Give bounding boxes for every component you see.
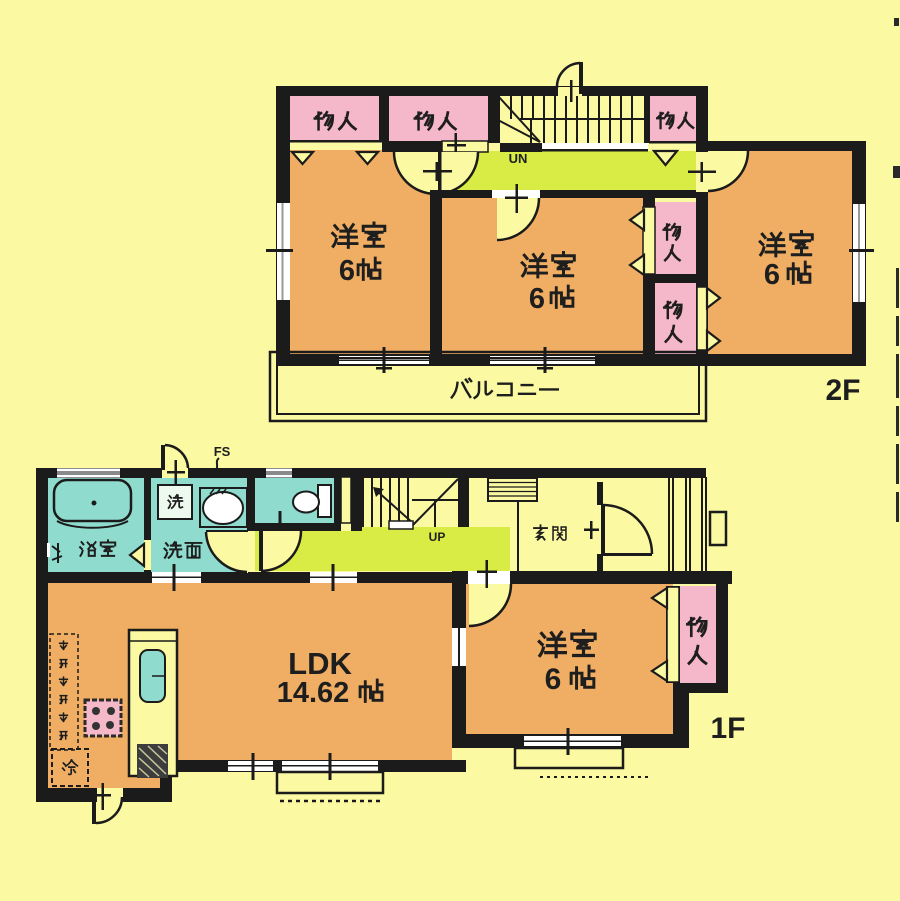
svg-text:6: 6 (545, 663, 562, 696)
svg-text:6: 6 (339, 255, 355, 287)
svg-text:14.62: 14.62 (277, 677, 350, 709)
svg-text:1F: 1F (710, 712, 745, 745)
svg-text:6: 6 (529, 283, 545, 315)
svg-text:2F: 2F (825, 374, 860, 407)
svg-text:FS: FS (214, 444, 231, 459)
svg-text:6: 6 (764, 259, 780, 291)
svg-text:LDK: LDK (288, 646, 352, 681)
svg-text:UN: UN (509, 151, 528, 166)
svg-text:UP: UP (429, 530, 446, 544)
